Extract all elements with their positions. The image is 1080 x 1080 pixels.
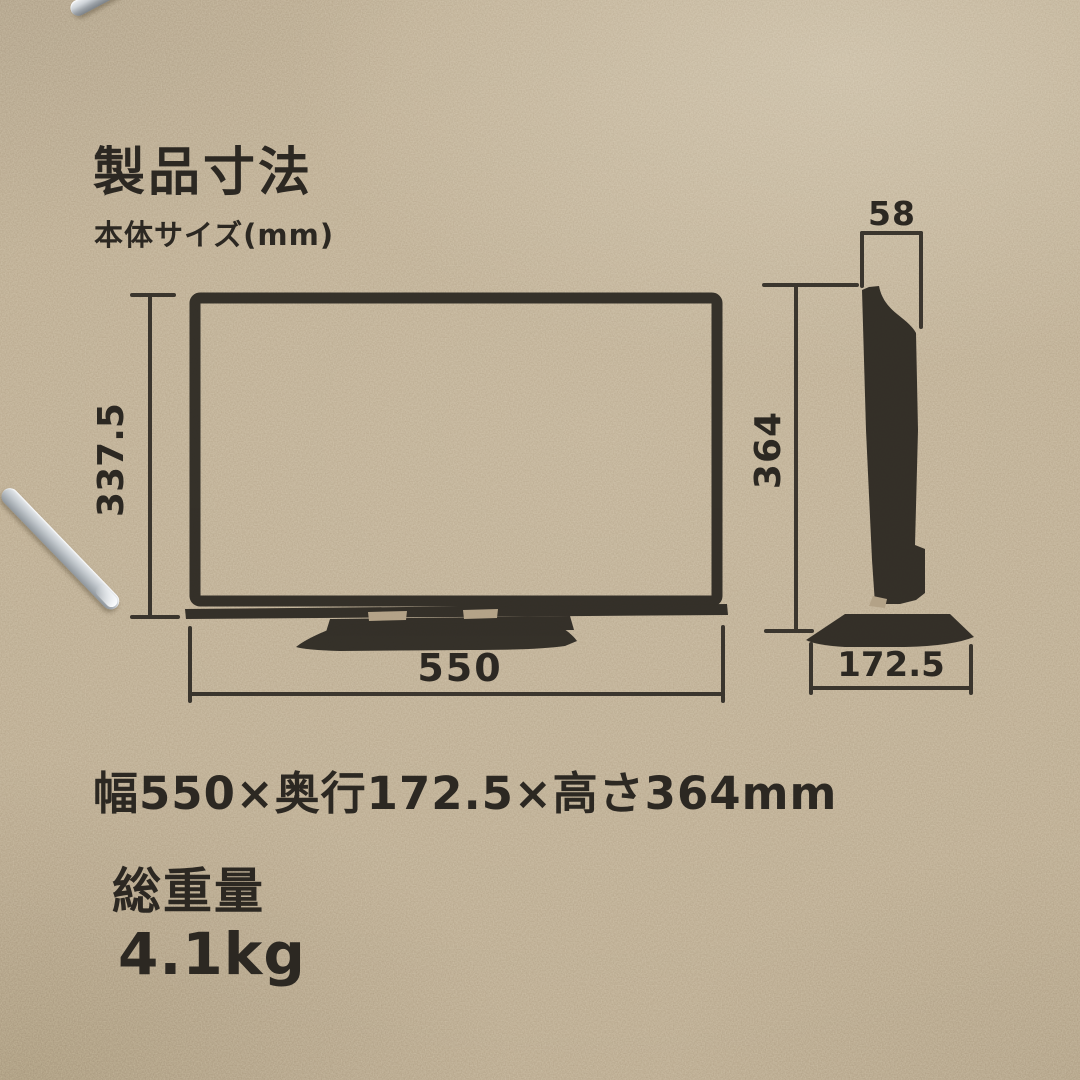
stand-notch-right bbox=[463, 609, 498, 619]
stand-notch-left bbox=[368, 611, 407, 621]
front-width-label: 550 bbox=[390, 649, 530, 689]
side-height-label: 364 bbox=[750, 385, 790, 515]
front-height-label: 337.5 bbox=[93, 395, 133, 525]
tv-side-view bbox=[806, 286, 974, 647]
side-base-depth-label: 172.5 bbox=[818, 648, 964, 684]
tv-side-body bbox=[862, 286, 925, 604]
side-top-depth-label: 58 bbox=[860, 197, 924, 232]
tv-front-view bbox=[185, 298, 728, 651]
tv-side-stand-base bbox=[806, 614, 974, 647]
cardboard-box-panel: 製品寸法 本体サイズ(mm) bbox=[0, 0, 1080, 1080]
weight-heading: 総重量 bbox=[112, 866, 265, 917]
size-summary-text: 幅550×奥行172.5×高さ364mm bbox=[93, 770, 837, 817]
weight-value: 4.1kg bbox=[118, 924, 306, 985]
tv-front-frame bbox=[195, 298, 717, 601]
